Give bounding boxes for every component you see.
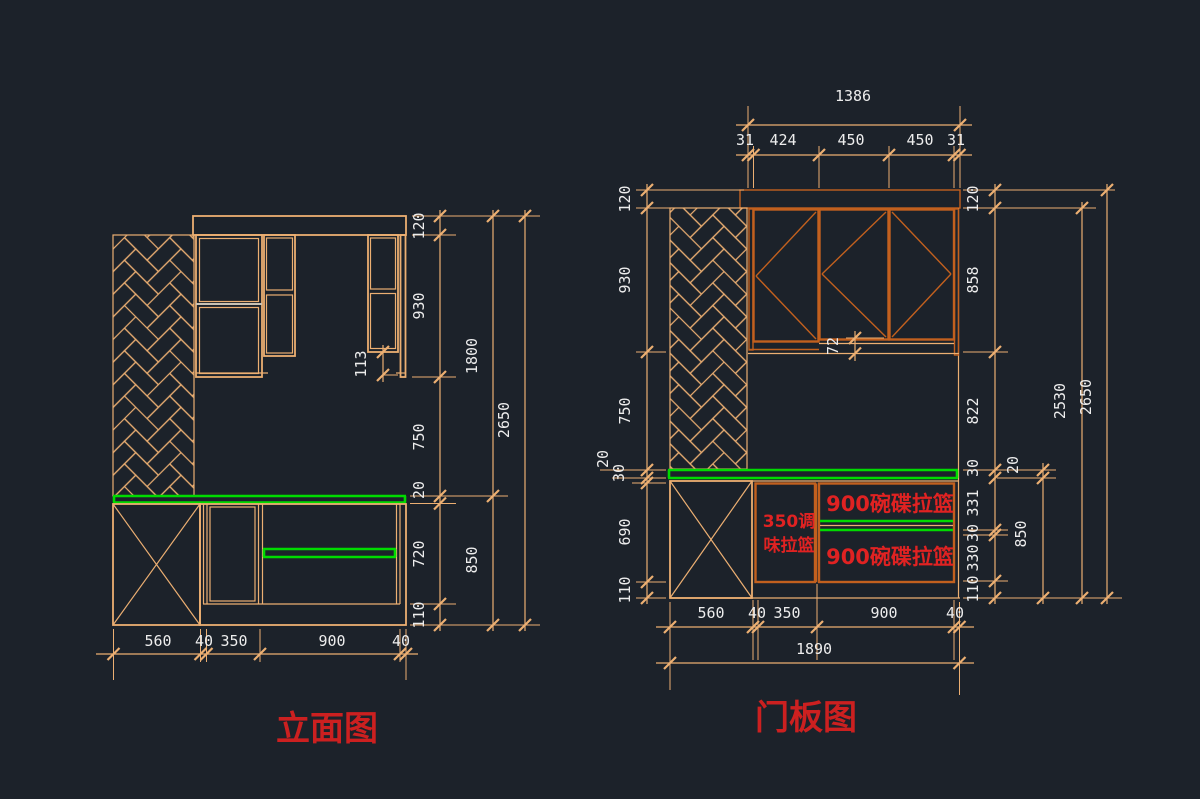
dim-door-31a: 31 <box>736 131 754 149</box>
dim-doorR-330: 330 <box>964 544 982 571</box>
elevation-title: 立面图 <box>276 709 378 749</box>
base-cabinets <box>113 504 406 625</box>
door-right-dims: 120 858 822 30 331 30 330 110 20 850 253… <box>963 184 1122 604</box>
dim-door-b350: 350 <box>773 604 800 622</box>
cad-canvas[interactable]: 113 <box>0 0 1200 799</box>
elevation-bottom-dims: 560 40 350 900 40 <box>96 629 418 680</box>
dim-door-b40b: 40 <box>946 604 964 622</box>
dim-doorR-120: 120 <box>964 185 982 212</box>
upper-door-panels <box>748 209 959 355</box>
dim-doorR-850: 850 <box>1012 520 1030 547</box>
door-bottom-dims: 560 40 350 900 40 1890 <box>656 584 974 695</box>
dish-basket-label-bottom: 900碗碟拉篮 <box>826 545 954 569</box>
dim-doorL-690: 690 <box>616 518 634 545</box>
dim-doorL-110: 110 <box>616 576 634 603</box>
dim-text-72: 72 <box>824 337 842 355</box>
dim-elev-b560: 560 <box>144 632 171 650</box>
countertop-2 <box>668 470 958 478</box>
base-door-panels: 350调 味拉篮 900碗碟拉篮 900碗碟拉篮 <box>670 481 960 598</box>
dim-door-450a: 450 <box>837 131 864 149</box>
dim-door-450b: 450 <box>906 131 933 149</box>
dim-door-b40a: 40 <box>748 604 766 622</box>
drawing-sheet: 113 <box>0 0 1200 799</box>
dim-doorR-2650: 2650 <box>1077 379 1095 415</box>
dim-door-b900: 900 <box>870 604 897 622</box>
dim-elev-20: 20 <box>410 481 428 499</box>
dim-door-1890: 1890 <box>796 640 832 658</box>
dim-elev-750: 750 <box>410 423 428 450</box>
dim-elev-110: 110 <box>410 601 428 628</box>
door-top-dims: 1386 31 424 450 450 31 <box>736 87 972 188</box>
dim-elev-120: 120 <box>410 212 428 239</box>
dish-basket-label-top: 900碗碟拉篮 <box>826 492 954 516</box>
dim-door-424: 424 <box>769 131 796 149</box>
dim-elev-1800: 1800 <box>463 338 481 374</box>
dim-text-113: 113 <box>352 350 370 377</box>
door-crown-band <box>740 190 960 208</box>
door-panel-view: 1386 31 424 450 450 31 <box>594 87 1122 738</box>
dim-elev-b900: 900 <box>318 632 345 650</box>
tile-hatch-column <box>113 235 194 496</box>
dim-doorR-30b: 30 <box>964 524 982 542</box>
dim-elev-b40b: 40 <box>392 632 410 650</box>
dim-doorR-822: 822 <box>964 397 982 424</box>
tile-hatch-column-2 <box>670 208 747 469</box>
dim-doorR-858: 858 <box>964 266 982 293</box>
dim-door-1386: 1386 <box>835 87 871 105</box>
dim-elev-2650: 2650 <box>495 402 513 438</box>
dim-elev-850: 850 <box>463 546 481 573</box>
dim-doorR-331: 331 <box>964 489 982 516</box>
dim-elev-720: 720 <box>410 540 428 567</box>
dim-doorL-120: 120 <box>616 185 634 212</box>
upper-cabinets <box>196 235 406 377</box>
dim-doorR-20: 20 <box>1004 456 1022 474</box>
dim-doorR-2530: 2530 <box>1051 383 1069 419</box>
dim-elev-930: 930 <box>410 292 428 319</box>
elevation-right-dims: 120 930 750 20 720 110 1800 850 2650 <box>410 210 540 631</box>
elevation-view: 113 <box>96 210 540 749</box>
countertop <box>113 496 406 503</box>
dim-elev-b40a: 40 <box>195 632 213 650</box>
dim-doorR-30a: 30 <box>964 459 982 477</box>
dim-doorL-750: 750 <box>616 397 634 424</box>
dim-door-31b: 31 <box>947 131 965 149</box>
dim-door-b560: 560 <box>697 604 724 622</box>
door-panel-title: 门板图 <box>755 698 857 738</box>
spice-basket-label-line1: 350调 <box>763 512 816 532</box>
dim-doorL-930: 930 <box>616 266 634 293</box>
dim-113: 113 <box>352 345 398 382</box>
dim-elev-b350: 350 <box>220 632 247 650</box>
dim-doorL-30: 30 <box>610 464 628 482</box>
spice-basket-label-line2: 味拉篮 <box>764 535 815 556</box>
crown-band <box>193 216 406 235</box>
dim-doorR-110: 110 <box>964 575 982 602</box>
